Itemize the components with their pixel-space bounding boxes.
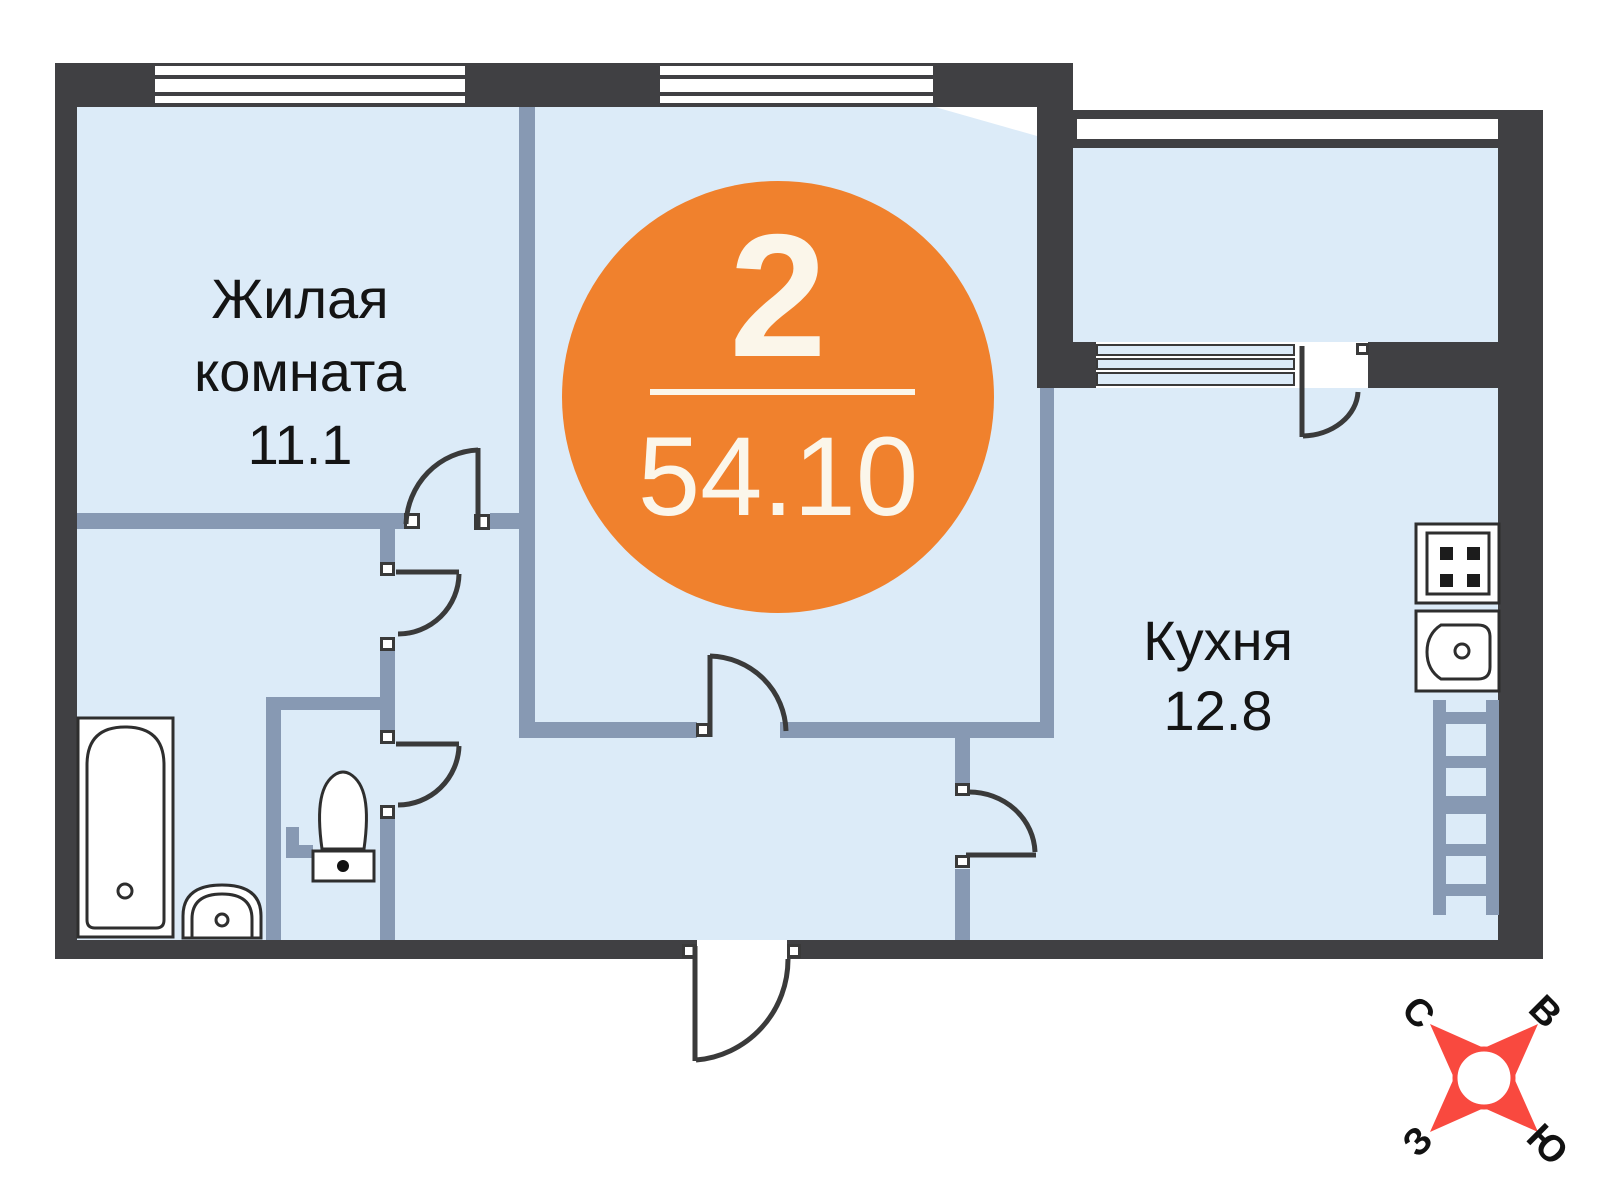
living-room-name-line2: комната — [130, 335, 470, 408]
door-room2-icon — [710, 655, 786, 737]
facade-wedge — [935, 107, 1037, 136]
living-room-label: Жилая комната 11.1 — [130, 262, 470, 481]
living-room-area: 11.1 — [130, 408, 470, 481]
kitchen-sink-icon — [1416, 611, 1499, 691]
door-balcony-icon — [1302, 346, 1358, 437]
door-wc-icon — [396, 744, 459, 805]
kitchen-name: Кухня — [1068, 606, 1368, 676]
door-kitchen-icon — [966, 792, 1036, 855]
total-area: 54.10 — [562, 417, 994, 537]
stove-icon — [1416, 524, 1499, 603]
living-room-name-line1: Жилая — [130, 262, 470, 335]
kitchen-area: 12.8 — [1068, 676, 1368, 746]
door-entrance-icon — [695, 946, 788, 1061]
room-count: 2 — [562, 197, 994, 397]
apartment-summary-badge: 2 54.10 — [562, 181, 994, 613]
kitchen-label: Кухня 12.8 — [1068, 606, 1368, 746]
bathtub-icon — [78, 718, 173, 937]
compass-rose-icon — [1430, 1024, 1538, 1132]
toilet-icon — [313, 772, 374, 881]
door-bathroom-icon — [396, 572, 459, 634]
washbasin-icon — [183, 885, 261, 938]
floor-plan: Жилая комната 11.1 Кухня 12.8 2 54.10 С … — [0, 0, 1600, 1200]
badge-divider — [650, 389, 915, 395]
